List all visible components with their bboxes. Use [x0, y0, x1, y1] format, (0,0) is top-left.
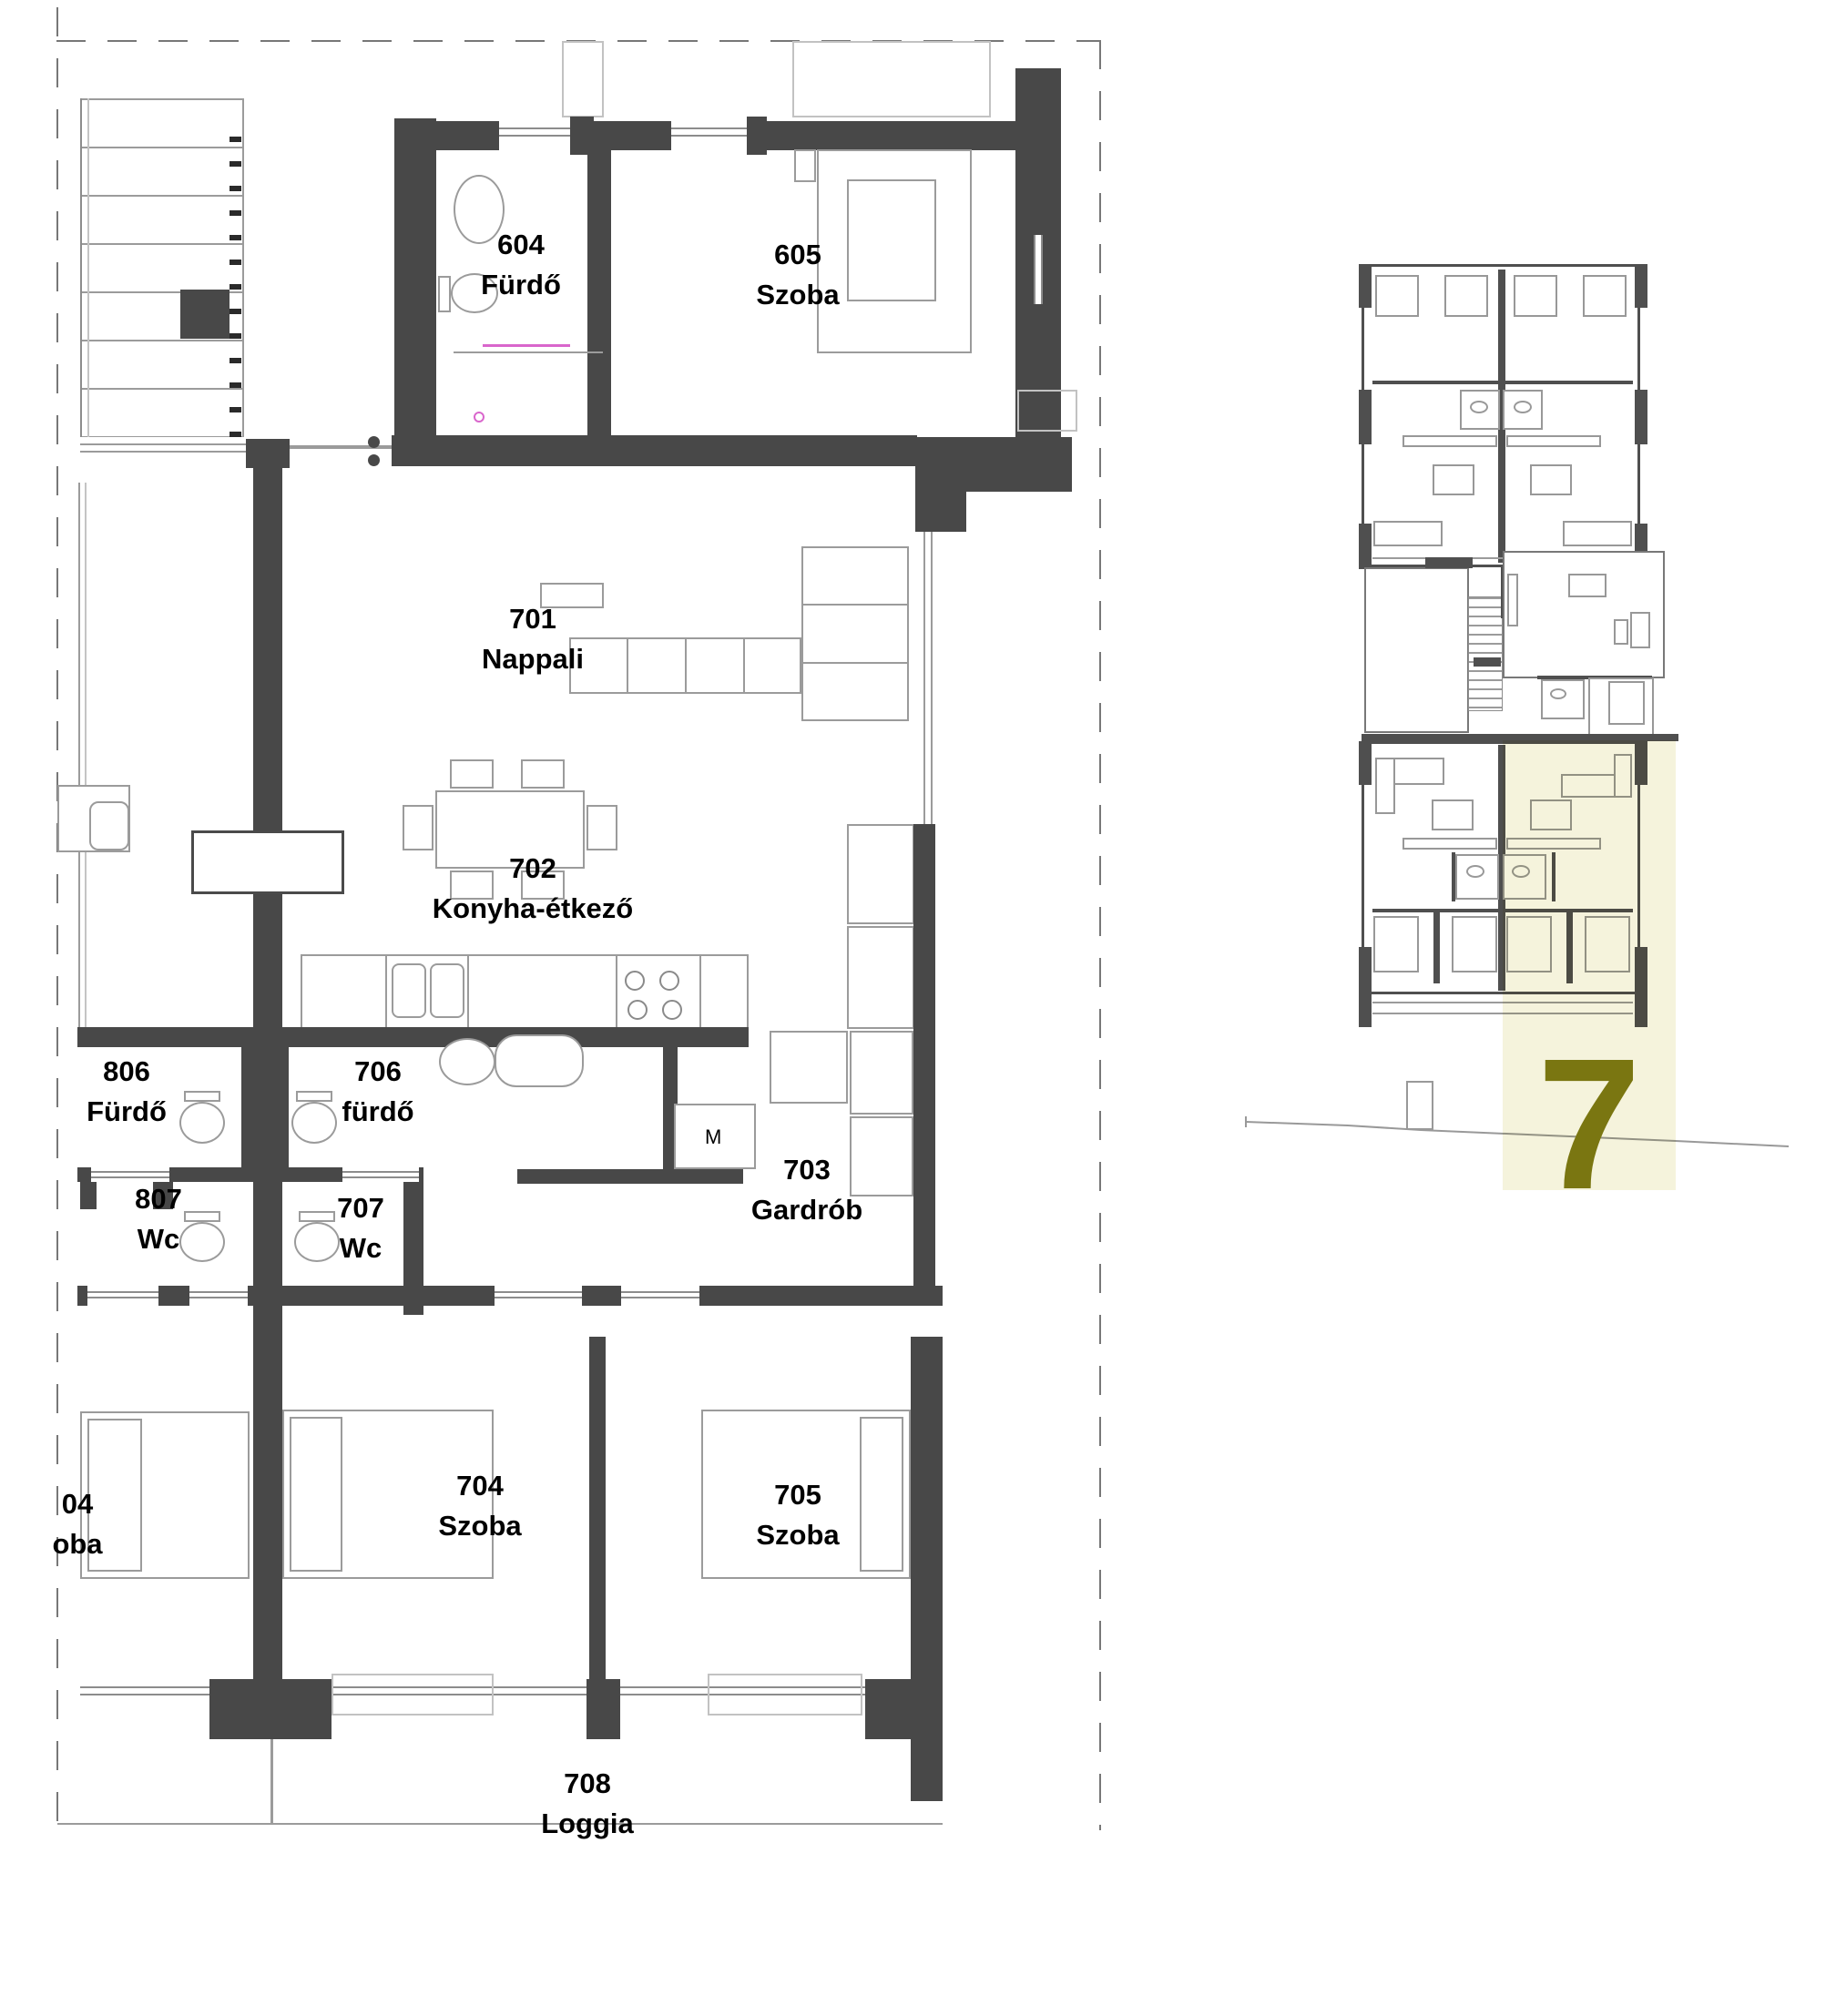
staircase-icon — [1468, 596, 1503, 711]
coffee-table-icon — [1614, 619, 1628, 645]
shaft-box — [191, 830, 344, 894]
bed-pillow-icon — [290, 1417, 342, 1572]
shower-screen-line — [454, 351, 603, 353]
keyplan-wall — [1359, 741, 1372, 785]
floorplan-line — [80, 443, 246, 445]
counter-divider — [385, 956, 387, 1027]
sofa-cushion-line — [685, 639, 687, 692]
drain-marker-magenta — [474, 412, 484, 423]
wall-jamb — [747, 117, 767, 155]
floorplan-sheet: M 604 Fürdő 605 Szoba 701 Nappali 702 Ko — [0, 0, 1836, 2016]
sofa-icon — [801, 546, 909, 721]
keyplan-lobby — [1364, 567, 1469, 733]
chair-icon — [586, 805, 617, 850]
room-number: 705 — [698, 1475, 898, 1515]
room-number: 806 — [26, 1052, 227, 1092]
bathroom-cell — [1541, 679, 1585, 719]
toilet-icon — [1466, 865, 1484, 878]
loggia-glass-divider — [270, 1739, 273, 1825]
keyplan-wall — [1433, 911, 1440, 983]
floorplan-line — [78, 483, 80, 1038]
window-605-east — [1034, 235, 1043, 304]
balcony-outline — [792, 41, 991, 117]
stair-terrace — [80, 98, 244, 437]
wall-segment — [915, 492, 966, 532]
room-number: 707 — [260, 1188, 461, 1228]
kitchen-counter-icon — [1507, 574, 1518, 626]
keyplan-wall — [1372, 381, 1633, 384]
keyplan-wall — [1635, 264, 1647, 308]
shaft-outline — [562, 41, 604, 117]
shower-rail-magenta — [483, 344, 570, 347]
room-label-605: 605 Szoba — [698, 235, 898, 315]
room-name: Loggia — [487, 1804, 688, 1844]
chair-icon — [89, 801, 129, 850]
door-604 — [499, 127, 570, 137]
sofa-icon — [1630, 612, 1650, 648]
toilet-icon — [1470, 401, 1488, 413]
kitchen-counter-icon — [1506, 435, 1601, 447]
wall-jamb — [570, 117, 594, 155]
room-number: 604 — [421, 225, 621, 265]
bathtub-icon — [495, 1034, 584, 1087]
dining-table-icon — [1530, 464, 1572, 495]
room-label-708: 708 Loggia — [487, 1764, 688, 1844]
floorplan-line — [85, 483, 87, 1038]
keyplan-wall — [1425, 557, 1473, 568]
floorplan-line — [242, 98, 244, 437]
kitchen-counter-icon — [301, 954, 749, 1029]
counter-divider — [467, 956, 469, 1027]
room-label-705: 705 Szoba — [698, 1475, 898, 1555]
party-wall — [253, 466, 282, 832]
room-name: Gardrób — [707, 1190, 907, 1230]
room-number: 704 — [380, 1466, 580, 1506]
dining-table-icon — [1568, 574, 1606, 597]
unit-number: 7 — [1503, 1029, 1676, 1220]
dining-table-icon — [1433, 464, 1474, 495]
counter-divider — [616, 956, 617, 1027]
window-detail — [1017, 390, 1077, 432]
sofa-icon — [1563, 521, 1632, 546]
room-label-703: 703 Gardrób — [707, 1150, 907, 1230]
chair-icon — [403, 805, 433, 850]
keyplan-wall — [1359, 524, 1372, 569]
sofa-cushion-line — [743, 639, 745, 692]
chair-icon — [450, 759, 494, 789]
kitchen-counter-icon — [1402, 435, 1497, 447]
wall-segment — [589, 1337, 606, 1685]
loggia-divider-wall — [586, 1679, 620, 1739]
window-wall-line — [923, 532, 925, 824]
room-label-804-clipped: 04 oba — [18, 1484, 137, 1564]
dining-table-icon — [1432, 799, 1474, 830]
kitchen-counter-icon — [1402, 838, 1497, 850]
room-label-707: 707 Wc — [260, 1188, 461, 1268]
room-label-704: 704 Szoba — [380, 1466, 580, 1546]
room-name: Wc — [260, 1228, 461, 1268]
room-number: 807 — [58, 1179, 259, 1219]
wall-pillar — [180, 290, 229, 339]
wall-segment — [915, 437, 1072, 492]
floorplan-line — [87, 98, 89, 437]
wall-segment — [767, 121, 1018, 150]
bed-icon — [1444, 275, 1488, 317]
washing-machine-label: M — [705, 1125, 721, 1149]
room-name: Wc — [58, 1219, 259, 1259]
bed-icon — [1608, 681, 1645, 725]
bed-icon — [1452, 916, 1497, 972]
room-name: oba — [18, 1524, 137, 1564]
sliding-door — [87, 1291, 158, 1298]
wall-segment — [392, 435, 917, 466]
chimney-outline — [1407, 1082, 1433, 1129]
sofa-cushion-line — [803, 662, 907, 664]
room-name: Szoba — [380, 1506, 580, 1546]
room-number: 605 — [698, 235, 898, 275]
room-number: 702 — [396, 849, 669, 889]
room-label-806: 806 Fürdő — [26, 1052, 227, 1132]
wardrobe-icon — [847, 824, 914, 924]
room-name: Szoba — [698, 1515, 898, 1555]
wall-segment — [246, 439, 290, 468]
wall-segment — [913, 824, 935, 1295]
stove-burner-icon — [627, 1000, 648, 1020]
sliding-door — [621, 1291, 699, 1298]
room-number: 703 — [707, 1150, 907, 1190]
door-hinge-icon — [368, 454, 380, 466]
sofa-icon — [1375, 758, 1395, 814]
wall-segment — [911, 1337, 943, 1801]
kitchen-sink-icon — [392, 963, 426, 1018]
keyplan-wall — [1474, 657, 1501, 667]
room-number: 708 — [487, 1764, 688, 1804]
bed-icon — [1583, 275, 1627, 317]
keyplan-wall — [1359, 994, 1372, 1027]
cabinet-icon — [770, 1031, 848, 1104]
sliding-door — [91, 1171, 169, 1178]
keyplan-wall — [1359, 947, 1372, 994]
room-label-706: 706 fürdő — [278, 1052, 478, 1132]
room-number: 706 — [278, 1052, 478, 1092]
door-hinge-icon — [368, 436, 380, 448]
wall-segment — [77, 1027, 749, 1047]
toilet-icon — [1514, 401, 1532, 413]
keyplan-wall — [1359, 390, 1372, 444]
bed-icon — [1375, 275, 1419, 317]
window-wall-line — [931, 532, 933, 824]
bed-icon — [1373, 916, 1419, 972]
wall-segment — [435, 121, 499, 150]
keyplan-wall — [1359, 264, 1372, 308]
kitchen-sink-icon — [430, 963, 464, 1018]
room-name: Nappali — [433, 639, 633, 679]
stove-burner-icon — [625, 971, 645, 991]
chair-icon — [521, 759, 565, 789]
room-name: Szoba — [698, 275, 898, 315]
sliding-door — [189, 1291, 248, 1298]
loggia-divider-wall — [865, 1679, 913, 1739]
planter-box — [331, 1674, 494, 1716]
floorplan-line — [80, 451, 246, 453]
wardrobe-icon — [850, 1031, 913, 1115]
loggia-divider-wall — [209, 1679, 331, 1739]
room-label-604: 604 Fürdő — [421, 225, 621, 305]
boundary-line-right — [1099, 40, 1101, 1830]
stair-nosing-ticks — [229, 137, 241, 437]
wardrobe-icon — [847, 926, 914, 1029]
sliding-door — [342, 1171, 419, 1178]
sofa-icon — [1373, 521, 1443, 546]
room-name: Fürdő — [421, 265, 621, 305]
loggia-glazing — [80, 1686, 209, 1695]
room-label-701: 701 Nappali — [433, 599, 633, 679]
sofa-cushion-line — [803, 604, 907, 606]
planter-box — [708, 1674, 862, 1716]
bed-icon — [1514, 275, 1557, 317]
room-label-807: 807 Wc — [58, 1179, 259, 1259]
room-label-702: 702 Konyha-étkező — [396, 849, 669, 929]
room-number: 701 — [433, 599, 633, 639]
stove-burner-icon — [662, 1000, 682, 1020]
room-number: 04 — [18, 1484, 137, 1524]
toilet-icon — [1550, 688, 1566, 699]
sliding-door — [495, 1291, 582, 1298]
nightstand-icon — [794, 149, 816, 182]
door-605 — [671, 127, 747, 137]
room-name: fürdő — [278, 1092, 478, 1132]
wall-segment — [594, 121, 671, 150]
keyplan-wall — [1635, 390, 1647, 444]
room-name: Fürdő — [26, 1092, 227, 1132]
party-wall — [253, 894, 282, 1040]
counter-divider — [699, 956, 701, 1027]
room-name: Konyha-étkező — [396, 889, 669, 929]
stove-burner-icon — [659, 971, 679, 991]
